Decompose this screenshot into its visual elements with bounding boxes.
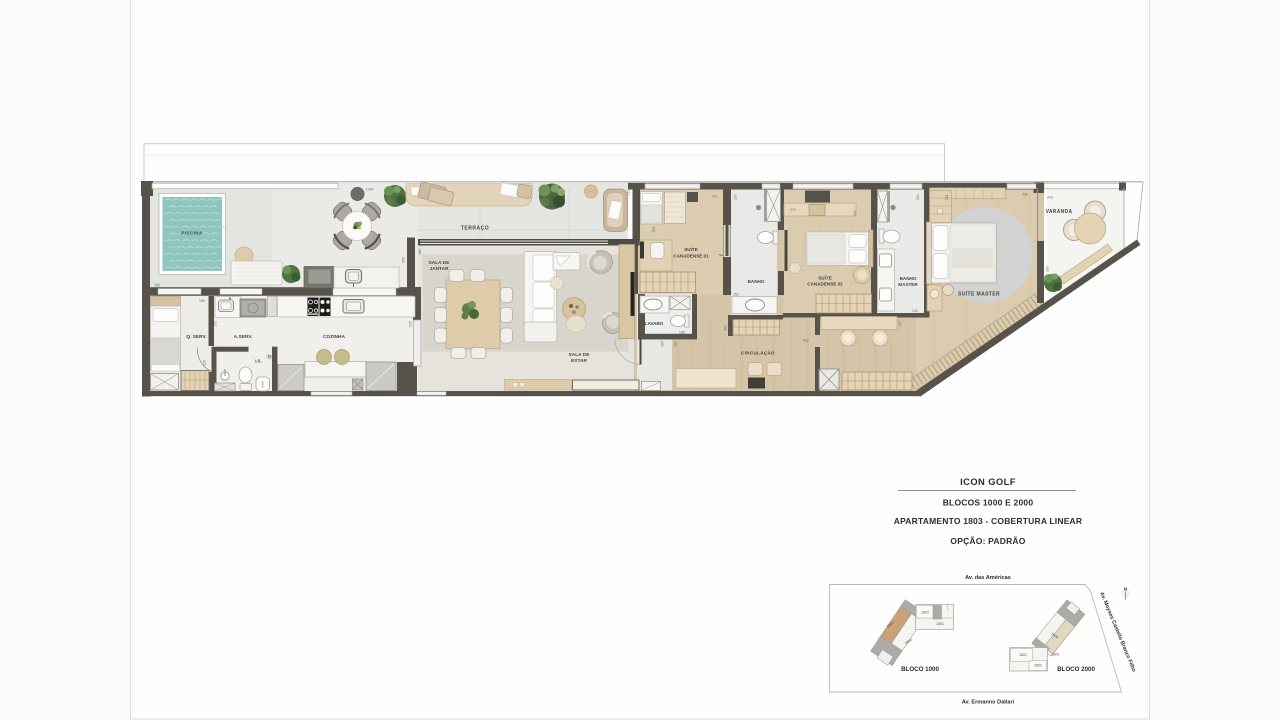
svg-text:VARANDA: VARANDA [1046, 209, 1073, 215]
svg-text:448: 448 [417, 290, 421, 296]
svg-text:CANADENSE 02: CANADENSE 02 [807, 282, 843, 287]
svg-text:1802: 1802 [921, 611, 929, 615]
svg-text:1425: 1425 [366, 188, 374, 192]
svg-text:1802: 1802 [1034, 664, 1042, 668]
svg-text:167: 167 [661, 341, 665, 347]
svg-text:COZINHA: COZINHA [323, 334, 345, 340]
svg-text:324: 324 [945, 195, 949, 201]
svg-text:271: 271 [712, 195, 718, 199]
svg-text:227: 227 [898, 321, 902, 327]
svg-text:230: 230 [734, 194, 738, 200]
svg-text:Av. Ermanno Dallari: Av. Ermanno Dallari [962, 700, 1015, 706]
svg-text:TERRAÇO: TERRAÇO [461, 226, 489, 232]
svg-text:1803: 1803 [1051, 653, 1059, 657]
svg-text:171: 171 [627, 190, 631, 196]
svg-text:391: 391 [853, 210, 857, 216]
svg-text:412: 412 [803, 339, 809, 343]
svg-text:273: 273 [790, 208, 796, 212]
svg-text:205: 205 [203, 360, 207, 366]
svg-text:127: 127 [268, 354, 272, 360]
svg-text:353: 353 [1046, 266, 1050, 272]
svg-text:I.S.: I.S. [255, 359, 262, 364]
svg-text:336: 336 [1022, 193, 1028, 197]
svg-text:150: 150 [674, 341, 678, 347]
svg-text:BLOCO 2000: BLOCO 2000 [1057, 666, 1095, 673]
svg-text:PISCINA: PISCINA [181, 231, 203, 236]
svg-text:170: 170 [214, 321, 218, 327]
svg-text:MASTER: MASTER [898, 282, 918, 287]
svg-text:ESTAR: ESTAR [571, 358, 587, 364]
svg-text:168: 168 [679, 331, 685, 335]
svg-text:243: 243 [1047, 196, 1053, 200]
svg-text:295: 295 [402, 257, 406, 263]
svg-text:Av. das Américas: Av. das Américas [965, 575, 1011, 581]
svg-text:SUÍTE: SUÍTE [818, 274, 832, 281]
svg-text:325: 325 [652, 227, 656, 233]
svg-text:CANADENSE 01: CANADENSE 01 [673, 254, 709, 259]
svg-text:BANHO: BANHO [900, 276, 917, 281]
svg-text:ICON GOLF: ICON GOLF [960, 476, 1016, 487]
svg-text:SALA DE: SALA DE [429, 260, 451, 266]
svg-text:205: 205 [409, 321, 413, 327]
svg-text:BLOCO 1000: BLOCO 1000 [901, 666, 939, 673]
svg-text:CIRCULAÇÃO: CIRCULAÇÃO [741, 350, 775, 356]
svg-text:142: 142 [912, 309, 918, 313]
svg-text:765: 765 [154, 283, 160, 287]
svg-text:SUÍTE MASTER: SUÍTE MASTER [958, 290, 1000, 298]
svg-text:SUÍTE: SUÍTE [684, 245, 698, 252]
svg-text:OPÇÃO: PADRÃO: OPÇÃO: PADRÃO [950, 536, 1025, 546]
svg-text:452: 452 [724, 325, 728, 331]
svg-text:SALA DE: SALA DE [569, 352, 591, 358]
svg-text:1801: 1801 [1019, 653, 1027, 657]
svg-text:JANTAR: JANTAR [429, 266, 449, 272]
svg-text:APARTAMENTO 1803 - COBERTURA L: APARTAMENTO 1803 - COBERTURA LINEAR [894, 516, 1083, 526]
svg-text:BLOCOS 1000 E 2000: BLOCOS 1000 E 2000 [943, 497, 1034, 507]
svg-text:361: 361 [916, 194, 920, 200]
svg-text:BANHO: BANHO [748, 279, 765, 284]
svg-text:152: 152 [733, 292, 739, 296]
svg-text:LAVABO: LAVABO [645, 321, 664, 326]
svg-text:Q. SERV.: Q. SERV. [186, 334, 206, 340]
svg-text:1801: 1801 [936, 622, 944, 626]
svg-text:188: 188 [199, 299, 205, 303]
svg-text:680: 680 [418, 249, 422, 255]
svg-text:A.SERV.: A.SERV. [234, 334, 253, 340]
svg-text:122: 122 [642, 327, 646, 333]
